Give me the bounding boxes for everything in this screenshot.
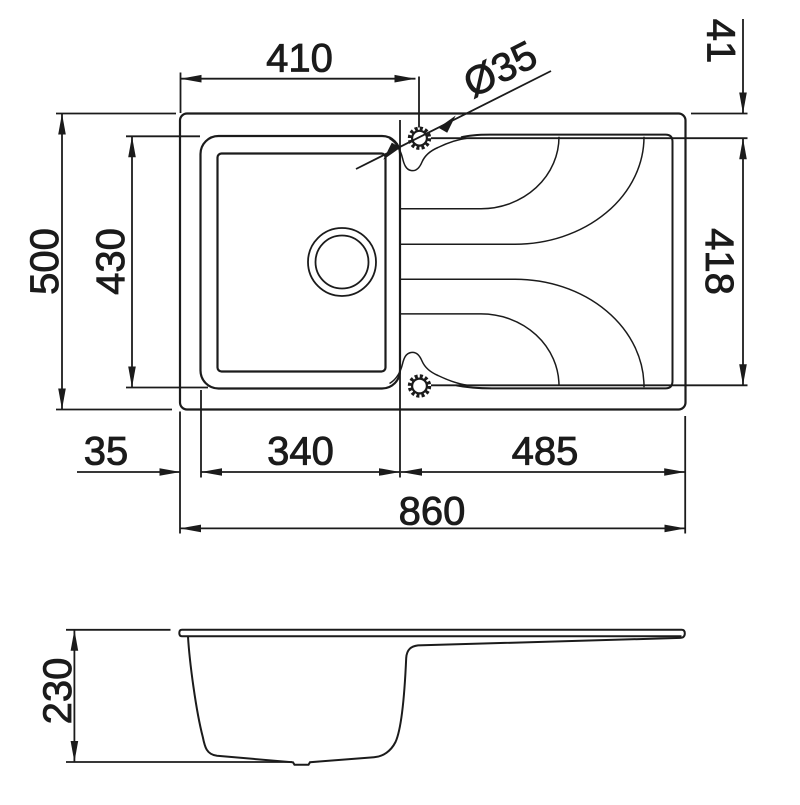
svg-text:430: 430 [89,228,133,295]
svg-text:860: 860 [399,490,466,534]
svg-text:Ø35: Ø35 [457,33,544,107]
svg-text:41: 41 [699,19,743,64]
svg-text:35: 35 [84,430,129,474]
svg-text:500: 500 [23,228,67,295]
svg-text:485: 485 [512,430,579,474]
svg-text:410: 410 [266,37,333,81]
svg-text:418: 418 [697,228,741,295]
svg-text:230: 230 [36,658,80,725]
svg-text:340: 340 [267,430,334,474]
